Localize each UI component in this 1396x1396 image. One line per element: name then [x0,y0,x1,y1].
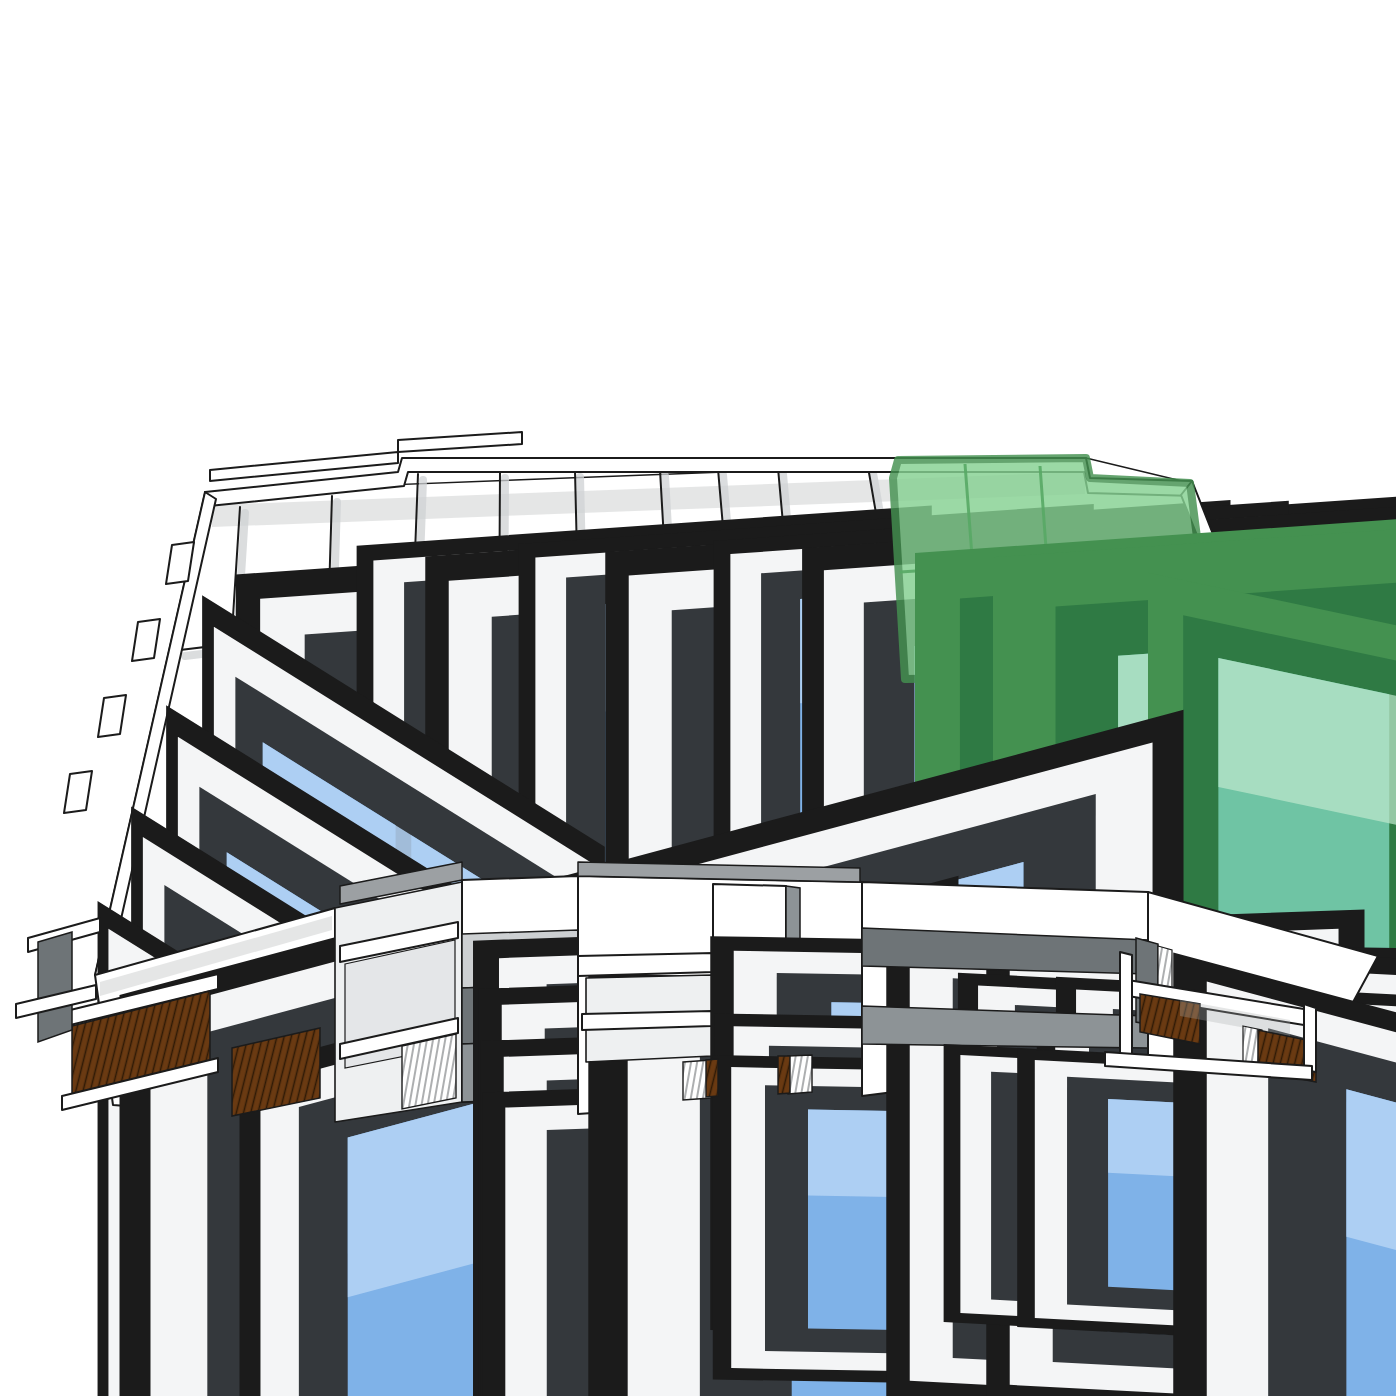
window [1190,967,1396,1396]
wood-screen [778,1056,790,1094]
balcony-railing [582,1011,712,1030]
balcony-post [1120,952,1132,1058]
entry-opening [38,932,72,1042]
facade-balcony-bay-left [335,862,462,1122]
balcony-post [1304,1004,1316,1072]
parapet-step-2 [398,432,522,452]
building-rendering [0,0,1396,1396]
wood-screen [706,1059,718,1097]
slat-screen [788,1055,812,1094]
scene: 3D cutaway model of an apartment buildin… [0,0,1396,1396]
balcony-slab [578,953,714,976]
slat-screen [402,1034,456,1109]
